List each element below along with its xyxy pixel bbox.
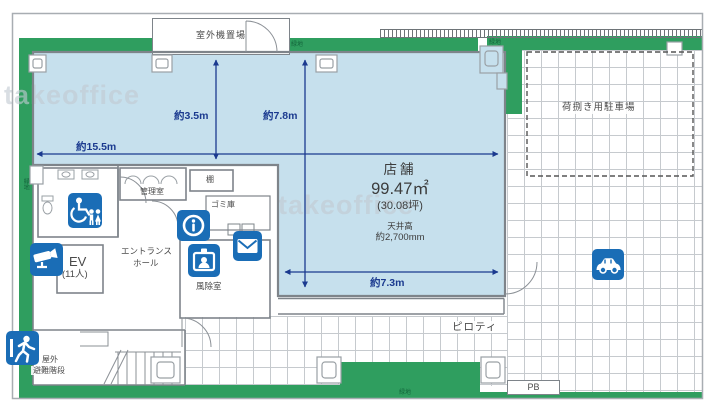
car-icon: [592, 249, 624, 280]
store-info: 店舗 99.47㎡ (30.08坪) 天井高 約2,700mm: [335, 162, 465, 244]
green-label: 緑地: [291, 39, 303, 48]
dimension-top-width: 約15.5m: [76, 139, 116, 154]
elevator-label: EV: [69, 255, 86, 270]
info-icon: [177, 210, 210, 241]
garbage-room-label: ゴミ庫: [211, 200, 235, 209]
shelf-label: 棚: [206, 175, 214, 184]
store-area-tsubo: (30.08坪): [335, 200, 465, 214]
security-camera-icon: [30, 243, 63, 276]
piloti-label: ピロティ: [450, 321, 499, 333]
dimension-bottom-width: 約7.3m: [370, 275, 404, 290]
dimension-center-depth: 約7.8m: [263, 108, 297, 123]
loading-parking-label: 荷捌き用駐車場: [560, 103, 638, 114]
mail-icon: [233, 231, 262, 261]
store-area-m2: 99.47㎡: [335, 179, 465, 200]
entrance-hall-label-2: ホール: [133, 259, 159, 269]
outdoor-stairs-label-2: 避難階段: [31, 366, 67, 375]
emergency-exit-icon: [6, 331, 39, 365]
outdoor-unit-label: 室外機置場: [152, 30, 290, 40]
dimension-left-depth: 約3.5m: [174, 108, 208, 123]
control-room-label: 管理室: [140, 187, 164, 196]
floor-plan: takeoffice takeoffice PB: [0, 0, 710, 407]
id-badge-icon: [188, 244, 220, 277]
ceiling-height-title: 天井高: [335, 221, 465, 232]
accessible-restroom-icon: [68, 193, 102, 228]
store-name: 店舗: [335, 162, 465, 179]
ceiling-height-value: 約2,700mm: [335, 232, 465, 244]
green-label: 緑地: [489, 37, 501, 46]
loading-parking-outline: [527, 52, 693, 176]
entrance-hall-label-1: エントランス: [121, 247, 172, 257]
green-label: 緑地: [21, 178, 30, 190]
outdoor-stairs-label-1: 屋外: [40, 355, 60, 364]
windbreak-room-label: 風除室: [196, 282, 222, 292]
elevator-capacity-label: (11人): [62, 270, 88, 281]
green-label: 緑地: [399, 387, 411, 396]
